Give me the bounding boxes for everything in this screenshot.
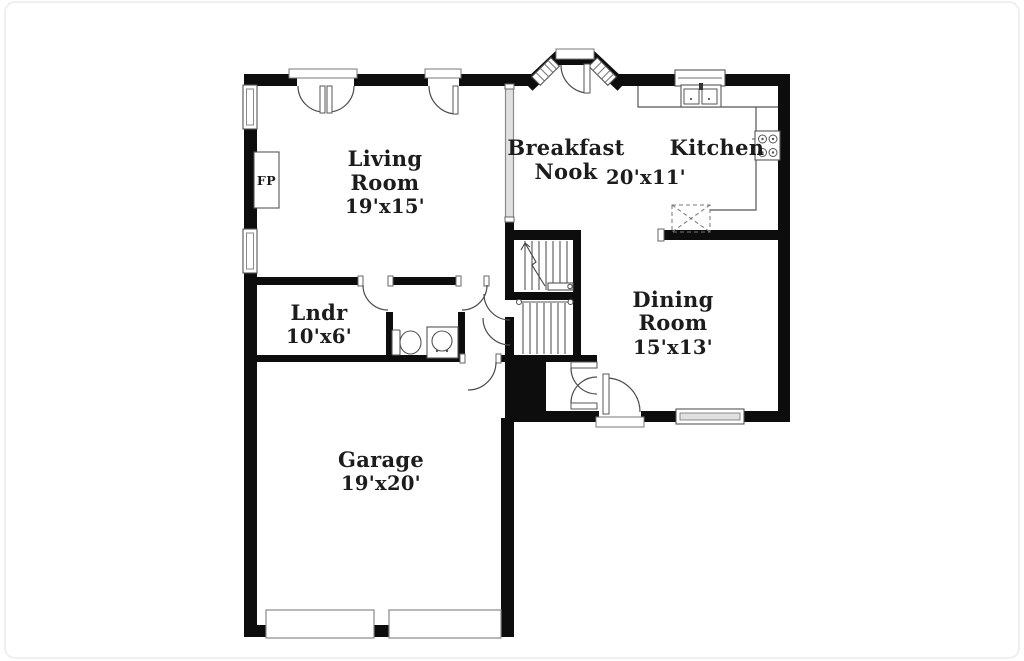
- window-dining-bottom: [676, 409, 744, 424]
- hall-door: [456, 276, 489, 310]
- laundry-name: Lndr: [291, 300, 349, 325]
- toilet: [392, 330, 421, 355]
- wall-stairs-right: [573, 240, 581, 362]
- living-room-name-line1: Living: [348, 146, 423, 171]
- fireplace: FP: [254, 152, 279, 208]
- room-labels: Living Room 19'x15' Breakfast Nook 20'x1…: [286, 135, 764, 495]
- kitchen-wall-end-cap: [658, 229, 664, 241]
- dishwasher: [672, 205, 710, 232]
- fireplace-label: FP: [257, 173, 276, 188]
- foyer-closet-doors: [571, 362, 597, 409]
- window-living-left-2: [243, 229, 257, 273]
- stairs-upper-flight: [521, 241, 573, 290]
- laundry-dimensions: 10'x6': [286, 325, 352, 348]
- dining-room-name-line2: Room: [639, 310, 708, 335]
- wall-top-living: [244, 74, 535, 86]
- nook-bay-door: [556, 49, 594, 93]
- sink-faucet: [699, 83, 703, 90]
- door-openings: [297, 73, 641, 423]
- opening-laundry-door: [362, 276, 389, 286]
- front-entry-door: [596, 374, 644, 427]
- wall-living-laundry-b: [389, 277, 460, 285]
- window-living-left-1: [243, 85, 257, 129]
- windows: [243, 58, 744, 424]
- wall-bath-right: [458, 312, 465, 357]
- wall-dining-bottom: [541, 411, 790, 422]
- kitchen-name: Kitchen: [670, 135, 765, 160]
- wall-stairs-left-upper: [505, 240, 514, 293]
- breakfast-nook-dimensions: 20'x11': [606, 166, 686, 189]
- wall-right-exterior: [778, 74, 790, 422]
- kitchen-sink: [681, 83, 721, 107]
- wall-stairs-top: [505, 230, 581, 240]
- wall-stairs-middle: [505, 292, 581, 300]
- wall-stairs-left-lower: [505, 317, 514, 357]
- wall-stairs-bottom: [505, 355, 597, 362]
- living-double-door: [289, 69, 357, 113]
- living-single-door: [425, 69, 461, 114]
- floor-plan-drawing: FP Living Room 19'x15' Breakfast Nook 20…: [0, 0, 1024, 661]
- opening-garage-entry-door: [464, 354, 498, 363]
- garage-door-2: [389, 610, 501, 638]
- kitchen-fixtures: [638, 83, 780, 241]
- floor-plan-image: FP Living Room 19'x15' Breakfast Nook 20…: [0, 0, 1024, 661]
- living-room-name-line2: Room: [351, 170, 420, 195]
- garage-name: Garage: [338, 447, 424, 472]
- wall-garage-right: [501, 418, 514, 637]
- garage-door-1: [266, 610, 374, 638]
- dining-room-name-line1: Dining: [632, 287, 713, 312]
- breakfast-nook-name-line1: Breakfast: [507, 135, 624, 160]
- dining-room-dimensions: 15'x13': [633, 336, 713, 359]
- breakfast-nook-name-line2: Nook: [535, 159, 598, 184]
- wall-living-laundry-a: [244, 277, 363, 285]
- stairs-lower-flight: [517, 300, 574, 355]
- living-room-dimensions: 19'x15': [345, 195, 425, 218]
- bath-sink: [427, 327, 458, 358]
- wall-structural-block: [505, 358, 546, 422]
- bath-fixtures: [392, 327, 458, 358]
- garage-dimensions: 19'x20': [341, 472, 421, 495]
